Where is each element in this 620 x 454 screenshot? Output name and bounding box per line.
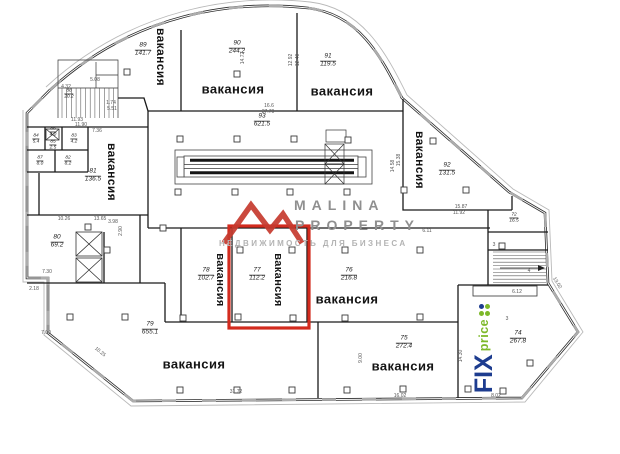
column bbox=[345, 137, 351, 143]
column bbox=[417, 247, 423, 253]
floor-plan-canvas: вакансия89141.7вакансия90244.2вакансия91… bbox=[0, 0, 620, 454]
column bbox=[234, 71, 240, 77]
column bbox=[400, 386, 406, 392]
column bbox=[85, 224, 91, 230]
column bbox=[124, 69, 130, 75]
column bbox=[180, 315, 186, 321]
column bbox=[344, 189, 350, 195]
column bbox=[289, 247, 295, 253]
fixprice-word-price: price bbox=[478, 319, 491, 351]
column bbox=[177, 387, 183, 393]
column bbox=[104, 247, 110, 253]
column bbox=[499, 243, 505, 249]
column bbox=[342, 247, 348, 253]
column bbox=[417, 314, 423, 320]
column bbox=[291, 136, 297, 142]
column bbox=[160, 225, 166, 231]
column bbox=[235, 314, 241, 320]
column bbox=[234, 387, 240, 393]
column bbox=[342, 315, 348, 321]
column bbox=[463, 187, 469, 193]
column bbox=[287, 189, 293, 195]
column bbox=[175, 189, 181, 195]
column bbox=[122, 314, 128, 320]
column bbox=[430, 138, 436, 144]
column bbox=[290, 315, 296, 321]
column bbox=[67, 314, 73, 320]
service-block bbox=[473, 286, 537, 296]
column bbox=[401, 187, 407, 193]
column bbox=[527, 360, 533, 366]
column bbox=[344, 387, 350, 393]
column bbox=[177, 136, 183, 142]
column bbox=[237, 247, 243, 253]
floor-plan-drawing bbox=[0, 0, 620, 454]
column bbox=[234, 136, 240, 142]
fixprice-word-fix: FIX bbox=[472, 354, 497, 393]
fixprice-logo: FIX price bbox=[466, 298, 502, 398]
fixprice-dots-icon bbox=[479, 303, 490, 316]
column bbox=[232, 189, 238, 195]
column bbox=[289, 387, 295, 393]
